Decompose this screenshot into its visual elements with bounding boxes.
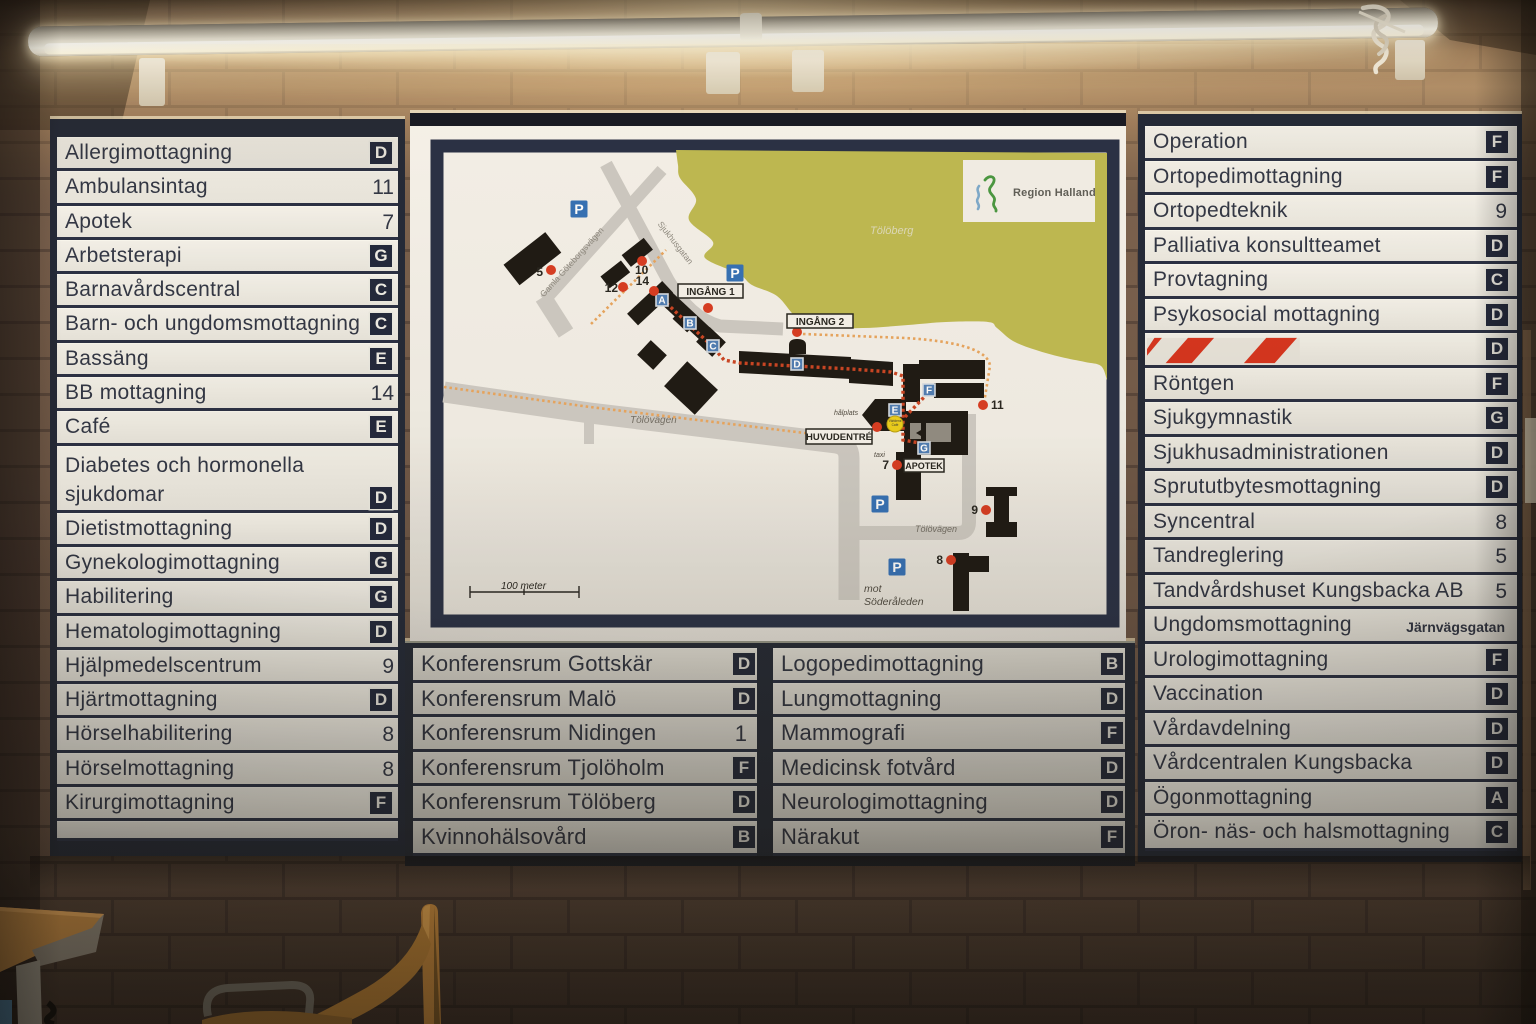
svg-text:Söderåleden: Söderåleden [864,596,924,608]
svg-text:7: 7 [882,458,889,472]
svg-text:14: 14 [636,274,650,288]
svg-text:Region Halland: Region Halland [1013,187,1096,199]
svg-text:P: P [892,559,901,575]
svg-text:P: P [875,496,884,512]
svg-text:9: 9 [971,503,978,517]
svg-text:INGÅNG 1: INGÅNG 1 [686,285,735,298]
svg-text:11: 11 [991,398,1004,412]
svg-text:Café: Café [892,423,899,427]
svg-text:E: E [892,406,899,417]
svg-text:G: G [920,444,928,455]
svg-text:F: F [926,386,932,397]
svg-text:HUVUDENTRÉ: HUVUDENTRÉ [806,432,872,443]
svg-text:taxi: taxi [874,452,885,459]
svg-text:D: D [793,360,800,371]
svg-text:A: A [658,296,665,307]
svg-text:P: P [730,265,739,281]
svg-text:P: P [574,201,583,217]
svg-text:12: 12 [605,281,619,295]
svg-text:hålplats: hålplats [834,409,859,417]
svg-text:Tölövägen: Tölövägen [630,415,677,426]
svg-text:INGÅNG 2: INGÅNG 2 [796,315,845,328]
svg-text:Tölövägen: Tölövägen [915,524,957,534]
svg-text:5: 5 [536,265,543,279]
svg-text:APOTEK: APOTEK [905,461,943,471]
svg-text:Tölöberg: Tölöberg [870,225,914,237]
svg-text:8: 8 [936,553,943,567]
svg-text:C: C [709,342,716,353]
svg-text:mot: mot [864,583,883,595]
svg-text:B: B [686,319,693,330]
svg-text:100 meter: 100 meter [501,581,547,592]
